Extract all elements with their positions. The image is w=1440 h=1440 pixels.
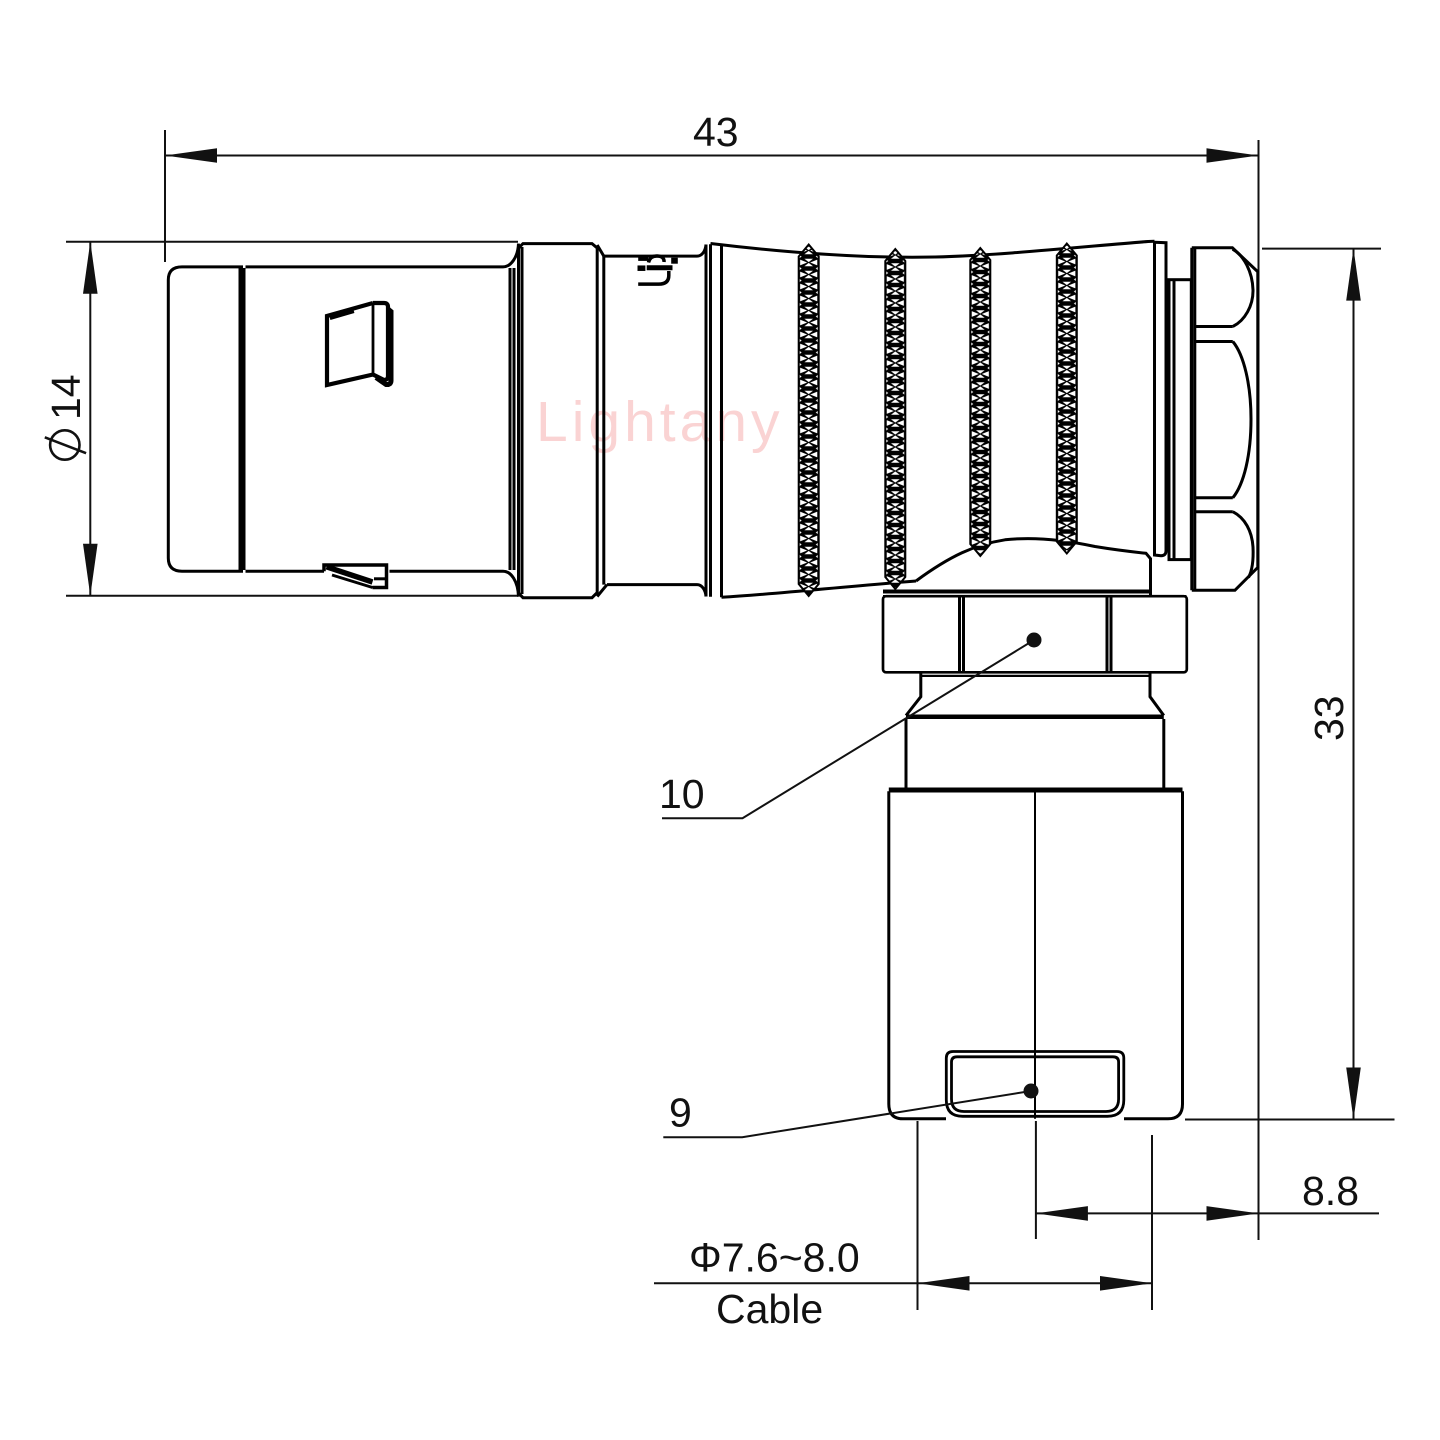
svg-text:8.8: 8.8 — [1302, 1168, 1359, 1214]
svg-text:43: 43 — [693, 109, 739, 155]
svg-text:Cable: Cable — [716, 1286, 823, 1332]
svg-text:14: 14 — [43, 374, 89, 420]
svg-text:9: 9 — [669, 1090, 692, 1136]
svg-text:Lightany: Lightany — [536, 390, 784, 454]
svg-text:10: 10 — [659, 771, 705, 817]
svg-text:Φ7.6~8.0: Φ7.6~8.0 — [689, 1235, 860, 1281]
svg-text:33: 33 — [1306, 695, 1352, 741]
